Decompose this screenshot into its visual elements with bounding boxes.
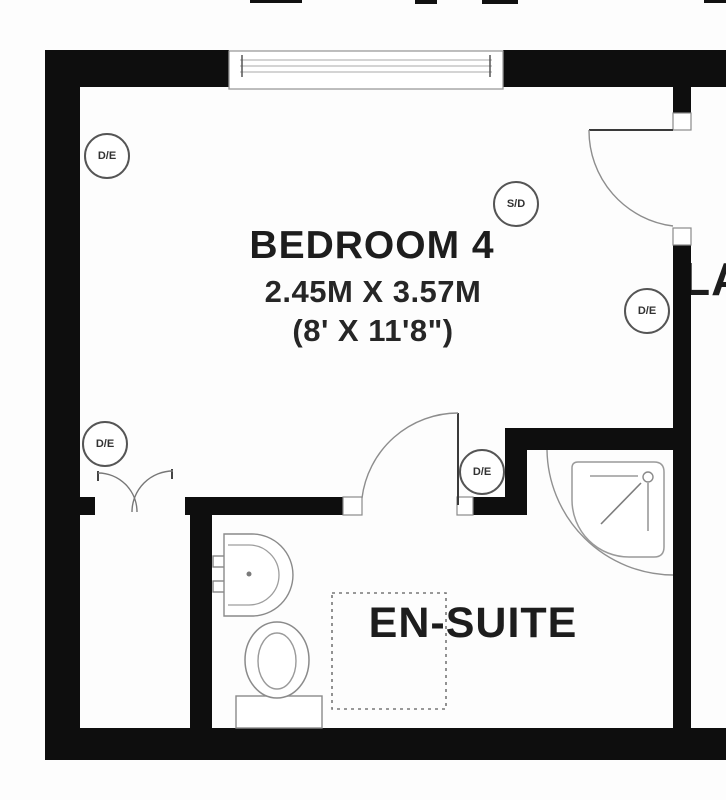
marker-de-right-wall: D/E <box>624 288 670 334</box>
shower-icon <box>547 450 673 575</box>
wall-right <box>673 245 691 728</box>
toilet-icon <box>236 622 322 728</box>
wall-interior-a <box>80 497 95 515</box>
marker-de-wardrobe: D/E <box>82 421 128 467</box>
wall-right-stub <box>673 87 691 113</box>
bedroom-dimensions-metric: 2.45M X 3.57M <box>265 276 482 307</box>
marker-sd-smoke-detector: S/D <box>493 181 539 227</box>
marker-de-top-left: D/E <box>84 133 130 179</box>
jamb <box>343 497 362 515</box>
basin-icon <box>213 534 293 616</box>
ensuite-door-icon <box>362 413 458 505</box>
jamb <box>457 497 473 515</box>
floor-plan-drawing <box>0 0 726 800</box>
landing-door-icon <box>589 130 673 226</box>
window-icon <box>229 51 503 89</box>
ensuite-room-label: EN-SUITE <box>369 602 578 645</box>
wall-step-vertical <box>505 428 527 515</box>
bedroom-room-label: BEDROOM 4 <box>249 226 494 265</box>
wall-ensuite-top <box>527 428 691 450</box>
walls <box>45 50 726 760</box>
bedroom-dimensions-imperial: (8' X 11'8") <box>292 315 453 346</box>
marker-de-ensuite-door: D/E <box>459 449 505 495</box>
wall-lobby-vertical <box>190 515 212 728</box>
wall-interior-b <box>185 497 343 515</box>
wall-bottom <box>45 728 726 760</box>
wall-left <box>45 50 80 760</box>
jamb <box>673 228 691 245</box>
wall-top-right <box>503 50 726 87</box>
double-door-icon <box>98 469 173 512</box>
jamb <box>673 113 691 130</box>
floor-plan-page: { "rooms": { "bedroom": { "name": "BEDRO… <box>0 0 726 800</box>
